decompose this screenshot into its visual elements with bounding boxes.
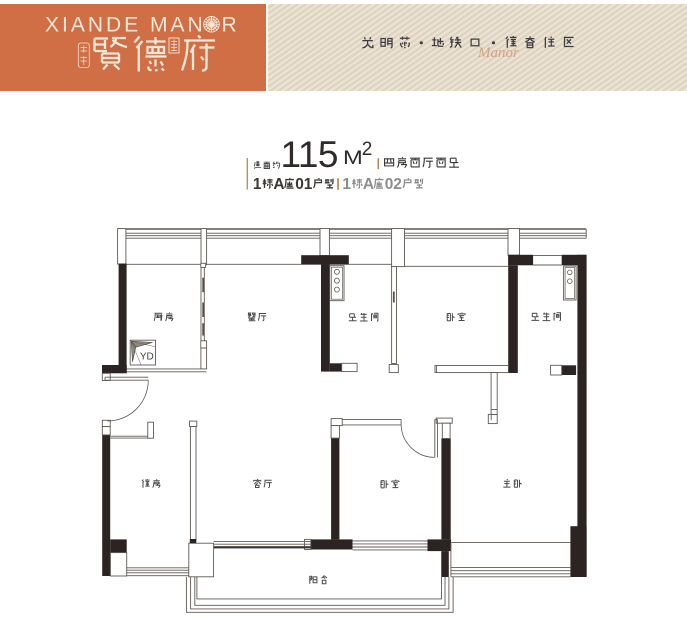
svg-text:01: 01 bbox=[295, 176, 313, 193]
svg-text:A: A bbox=[363, 176, 374, 193]
svg-text:R: R bbox=[222, 14, 237, 37]
svg-text:YD: YD bbox=[140, 351, 154, 362]
svg-text:A: A bbox=[273, 176, 284, 193]
svg-text:1: 1 bbox=[253, 176, 262, 193]
svg-text:02: 02 bbox=[385, 176, 402, 193]
svg-text:XIANDE MAN: XIANDE MAN bbox=[45, 14, 206, 37]
svg-text:1: 1 bbox=[342, 176, 351, 193]
